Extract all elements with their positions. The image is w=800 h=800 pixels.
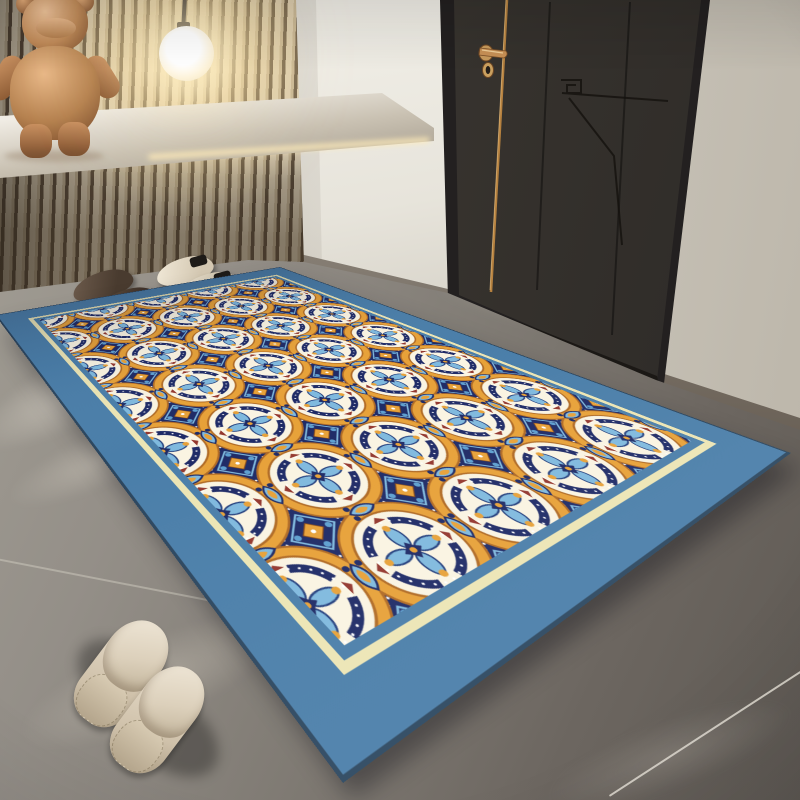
entryway-scene: [0, 0, 800, 800]
